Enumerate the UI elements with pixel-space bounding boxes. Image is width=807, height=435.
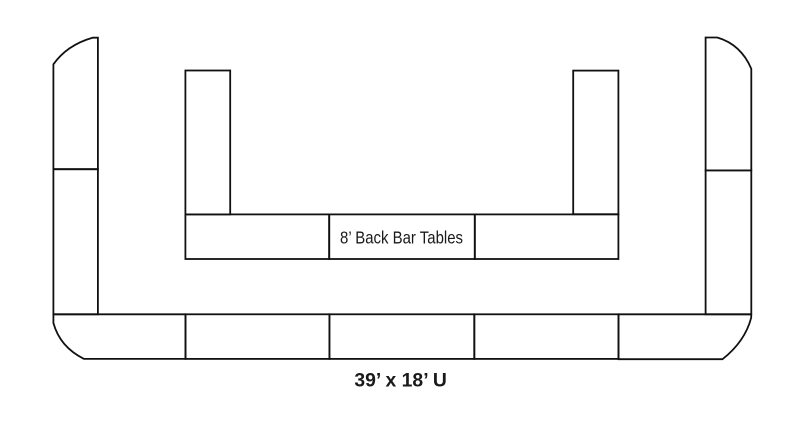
svg-text:39’ x 18’ U: 39’ x 18’ U [354, 369, 447, 391]
svg-text:8’ Back Bar Tables: 8’ Back Bar Tables [340, 228, 463, 248]
